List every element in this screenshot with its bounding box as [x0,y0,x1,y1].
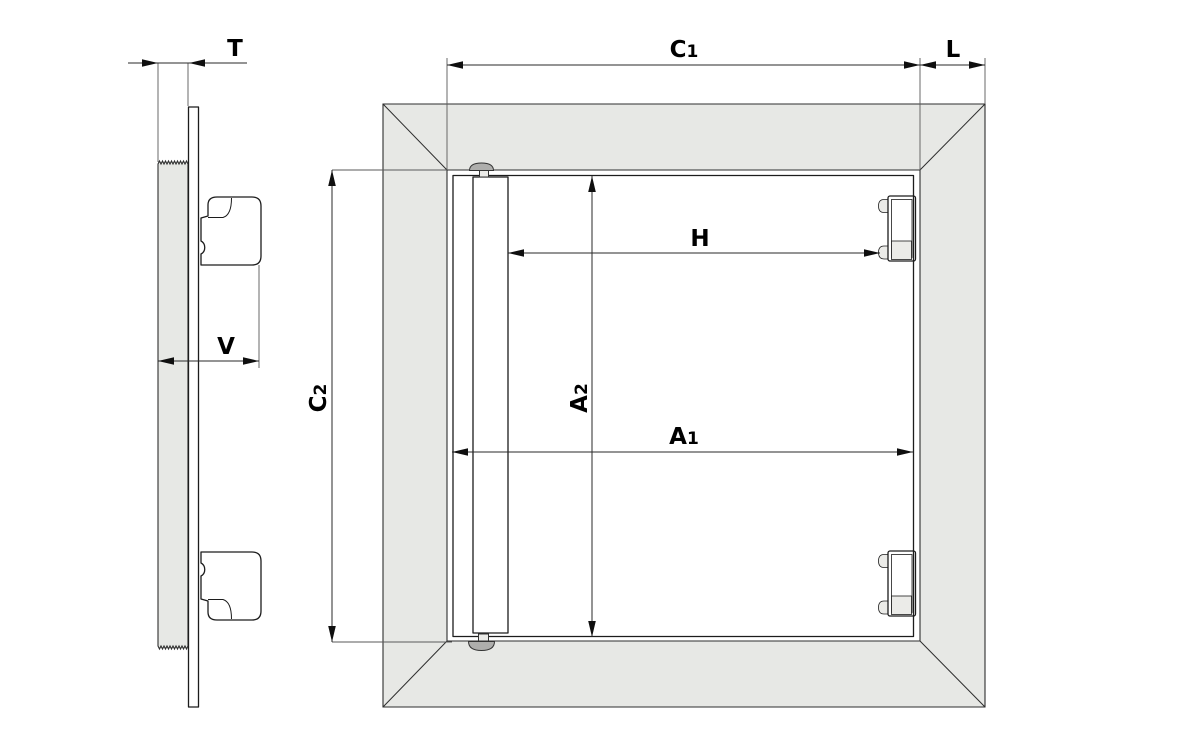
dim-label-V: V [217,334,235,360]
t-arrow-left [142,59,158,67]
h-arrow-left [508,249,524,257]
hinge-pin-bottom-stem [479,634,489,641]
a1-arrow-left [452,448,468,456]
dim-label-A1: A1 [669,424,699,450]
dimension-H: H [508,226,880,257]
latch-profile-bottom [201,552,261,620]
latch-front-bottom [879,551,916,616]
dimension-T: T [128,36,247,162]
t-arrow-right [189,59,205,67]
c1-arrow-right [904,61,920,69]
dim-label-A2: A2 [567,383,593,413]
dimension-A1: A1 [452,424,913,456]
dimension-A2: A2 [567,176,596,637]
a1-arrow-right [897,448,913,456]
latch-front-top [879,196,916,261]
hinge-pin-top-dome [470,163,494,171]
a2-arrow-bottom [588,621,596,637]
dim-label-L: L [946,37,961,63]
v-arrow-right [243,357,259,365]
dim-label-C2: C2 [306,384,332,413]
dim-label-C1: C1 [670,37,699,63]
dimension-L: L [920,37,985,104]
hinge-pin-top-stem [480,171,489,178]
h-arrow-right [864,249,880,257]
a2-arrow-top [588,176,596,192]
front-view: C1 L C2 [306,37,985,707]
dim-label-H: H [690,226,709,252]
l-arrow-left [920,61,936,69]
c2-arrow-top [328,170,336,186]
l-arrow-right [969,61,985,69]
wall-section [158,161,188,649]
frame-flange-plate [189,107,199,707]
door-leaf [453,176,914,637]
hinge-pin-bottom-dome [469,642,495,651]
dim-label-T: T [227,36,243,62]
c1-arrow-left [447,61,463,69]
hinge-bar [473,177,508,633]
c2-arrow-bottom [328,626,336,642]
side-section-view: T V [128,36,261,707]
technical-drawing-canvas: T V [0,0,1196,752]
latch-profile-top [201,197,261,265]
access-panel-drawing: T V [0,0,1196,752]
